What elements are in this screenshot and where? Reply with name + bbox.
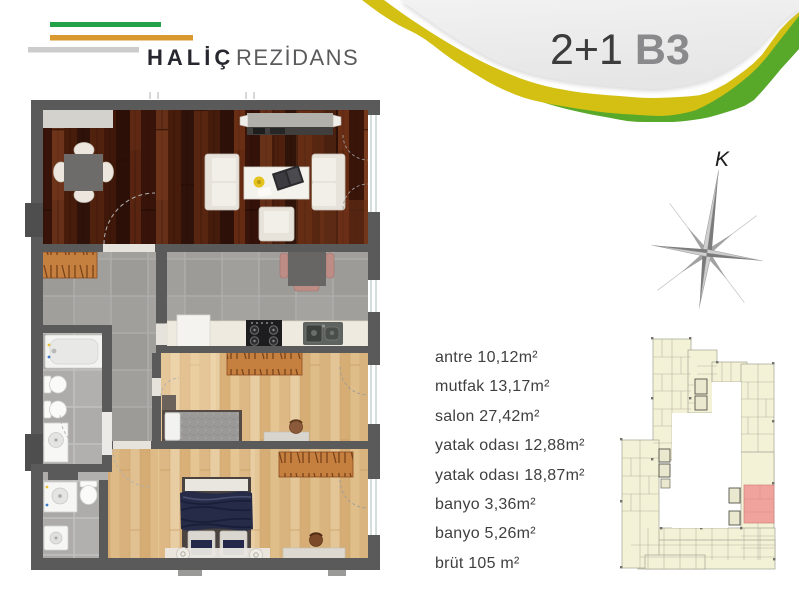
svg-text:HALİÇ: HALİÇ: [147, 45, 234, 70]
svg-text:yatak odası 18,87m²: yatak odası 18,87m²: [435, 467, 585, 484]
svg-text:2+1 B3: 2+1 B3: [550, 26, 690, 74]
svg-text:brüt 105 m²: brüt 105 m²: [435, 555, 520, 572]
svg-text:antre 10,12m²: antre 10,12m²: [435, 349, 538, 366]
svg-text:yatak odası 12,88m²: yatak odası 12,88m²: [435, 437, 585, 454]
svg-text:salon 27,42m²: salon 27,42m²: [435, 408, 540, 425]
svg-text:banyo 5,26m²: banyo 5,26m²: [435, 525, 536, 542]
svg-text:mutfak 13,17m²: mutfak 13,17m²: [435, 378, 550, 395]
svg-text:K: K: [715, 148, 730, 171]
svg-text:banyo 3,36m²: banyo 3,36m²: [435, 496, 536, 513]
svg-text:REZİDANS: REZİDANS: [236, 45, 359, 70]
